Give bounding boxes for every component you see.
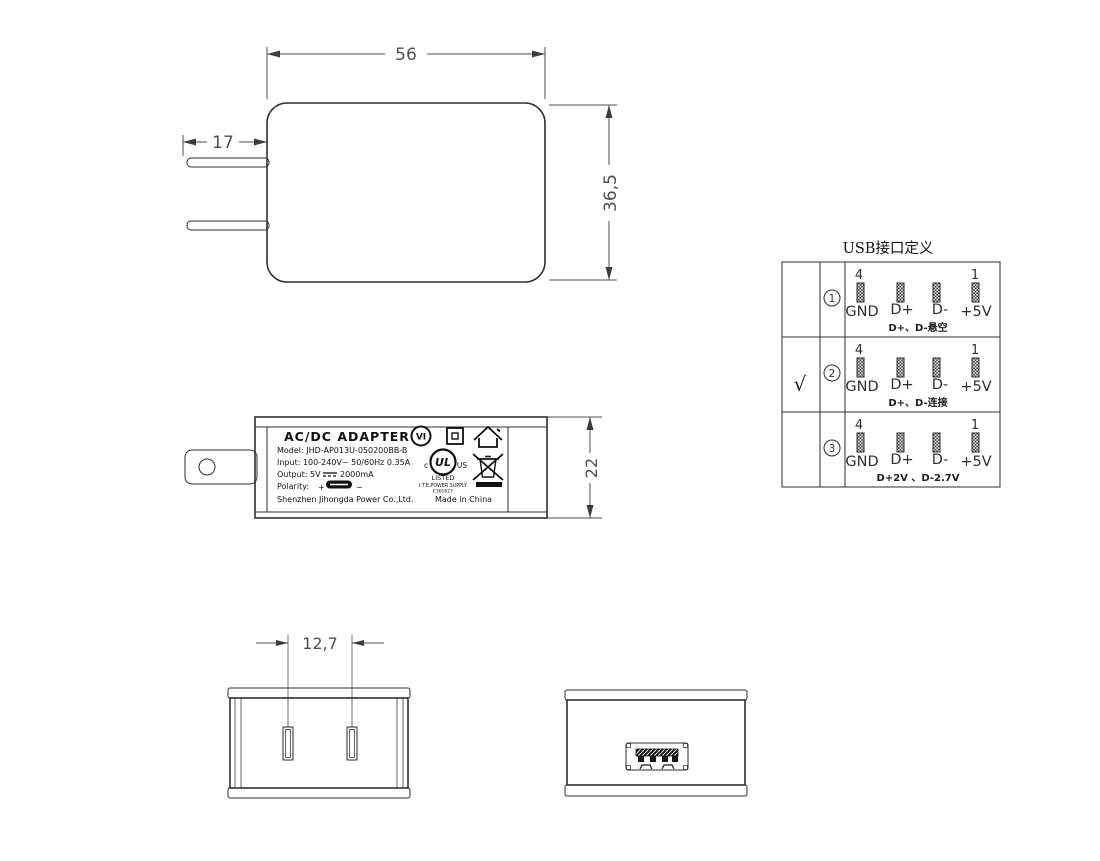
pin-label-gnd: GND (845, 379, 878, 395)
dim-height-22: 22 (547, 417, 602, 518)
arrowhead (532, 51, 545, 58)
outer-square (447, 428, 463, 444)
case-side-strip (397, 698, 403, 788)
cul-us-listed-icon: UL c US LISTED I.T.E.POWER SUPPLY E36162… (419, 450, 467, 495)
pin-label-5v: +5V (960, 304, 991, 320)
usb-contact-tab (650, 756, 656, 762)
ul-listed-text: LISTED (432, 474, 455, 482)
usb-a-port (626, 743, 688, 770)
pinout-row-2: √ 2 4 1 GND D+ D- +5V D+、D-连接 (794, 343, 992, 409)
efficiency-vi-icon: VI (412, 427, 431, 446)
label-polarity-minus: − (356, 483, 363, 492)
dim-value-height: 36,5 (601, 174, 621, 212)
pin-number-4: 4 (855, 343, 863, 358)
ul-file-number: E361627 (433, 489, 453, 495)
weee-crossed-bin-icon (473, 454, 503, 487)
usb-shell-notch (662, 765, 674, 769)
indoor-use-house-icon (474, 427, 502, 447)
row-number: 3 (829, 443, 836, 455)
dc-symbol-icon (323, 473, 337, 476)
pin-number-1: 1 (971, 343, 979, 358)
spec-label: AC/DC ADAPTER Model: JHD-AP013U-050200BB… (267, 427, 508, 513)
dim-value-prong-length: 17 (212, 133, 234, 153)
case-body (230, 698, 408, 788)
pin-label-dplus: D+ (890, 452, 913, 468)
usb-pin-contact (972, 283, 979, 302)
label-made-in: Made in China (435, 495, 492, 504)
case-bottom-cap (228, 788, 410, 798)
usb-tongue (636, 749, 678, 756)
label-output-current: 2000mA (340, 470, 374, 479)
dim-prong-length-17: 17 (183, 133, 267, 156)
usb-port-outline (626, 743, 688, 770)
arrowhead (587, 505, 594, 518)
pin-label-dminus: D- (932, 302, 948, 318)
arrowhead (606, 105, 613, 118)
usb-pin-contact (933, 283, 940, 302)
row-selected-mark: √ (794, 372, 807, 396)
usb-port-corner (684, 744, 688, 748)
prong-inner-line (350, 730, 355, 758)
pinout-row-1: 1 4 1 GND D+ D- +5V D+、D-悬空 (824, 268, 992, 334)
usb-pin-contact (933, 433, 940, 452)
arrowhead (183, 139, 196, 146)
ul-us: US (457, 461, 467, 470)
table-title: USB接口定义 (843, 240, 934, 257)
pinout-row-3: 3 4 1 GND D+ D- +5V D+2V 、D-2.7V (824, 418, 992, 484)
house-walls (479, 438, 497, 447)
row-note: D+、D-悬空 (888, 321, 947, 334)
mains-prong (187, 158, 269, 167)
mains-prong-side (185, 450, 257, 484)
pin-label-5v: +5V (960, 454, 991, 470)
weee-bar (476, 482, 502, 487)
house-chimney (497, 429, 500, 432)
mains-prong-front (283, 727, 293, 760)
adapter-body-outline (267, 103, 545, 282)
usb-contact-tab (672, 756, 678, 762)
usb-contact-tab (662, 756, 668, 762)
prong-outline (347, 727, 357, 760)
pin-number-4: 4 (855, 418, 863, 433)
usb-pin-contact (897, 358, 904, 377)
label-model-line: Model: JHD-AP013U-050200BB-B (277, 446, 407, 455)
arrowhead (254, 139, 267, 146)
technical-drawing-canvas: 56 17 36,5 (0, 0, 1100, 861)
arrowhead (606, 267, 613, 280)
ul-supply-text: I.T.E.POWER SUPPLY (419, 483, 467, 489)
pin-label-dplus: D+ (890, 302, 913, 318)
dim-value-width: 56 (395, 45, 417, 65)
row-number: 2 (829, 368, 836, 380)
pin-label-dminus: D- (932, 377, 948, 393)
pin-label-gnd: GND (845, 454, 878, 470)
prong-hole (199, 459, 215, 475)
class2-double-insulation-icon (447, 428, 463, 444)
ul-letters: UL (435, 456, 451, 469)
usb-pinout-table: USB接口定义 1 4 1 GND D+ D- +5V D+、D-悬空 √ (770, 225, 1015, 500)
dim-prong-spacing-12-7: 12,7 (256, 634, 384, 727)
label-company: Shenzhen Jihongda Power Co.,Ltd. (277, 495, 414, 504)
pin-label-gnd: GND (845, 304, 878, 320)
dim-value-thickness: 22 (582, 458, 601, 478)
arrowhead (267, 51, 280, 58)
inner-square (452, 433, 458, 439)
label-output-prefix: Output: 5V (277, 470, 321, 479)
arrowhead (587, 417, 594, 430)
label-title: AC/DC ADAPTER (284, 429, 410, 444)
usb-pin-contact (857, 358, 864, 377)
usb-port-corner (627, 766, 631, 770)
row-note: D+2V 、D-2.7V (877, 473, 960, 484)
case-top-cap (565, 690, 747, 700)
pin-number-1: 1 (971, 418, 979, 433)
case-side-strip (235, 698, 241, 788)
arrowhead (276, 640, 288, 646)
pin-number-1: 1 (971, 268, 979, 283)
case-bottom-cap (565, 785, 747, 796)
side-view: AC/DC ADAPTER Model: JHD-AP013U-050200BB… (170, 395, 620, 540)
pin-number-4: 4 (855, 268, 863, 283)
arrowhead (352, 640, 364, 646)
prong-outline (283, 727, 293, 760)
dim-height-36-5: 36,5 (549, 105, 621, 280)
mains-prong-front (347, 727, 357, 760)
label-polarity: Polarity: (277, 482, 309, 491)
row-number: 1 (829, 293, 836, 305)
usb-pin-contact (857, 433, 864, 452)
usb-contact-tab (638, 756, 644, 762)
usb-pin-contact (897, 283, 904, 302)
row-note: D+、D-连接 (888, 396, 947, 409)
usb-pin-contact (933, 358, 940, 377)
pin-label-dminus: D- (932, 452, 948, 468)
dim-width-56: 56 (267, 45, 545, 99)
plug-face-view: 12,7 (210, 615, 430, 810)
usb-shell-notch (640, 765, 652, 769)
case-top-cap (228, 688, 410, 698)
usb-pin-contact (972, 358, 979, 377)
front-view: 56 17 36,5 (155, 25, 655, 295)
usb-pin-contact (897, 433, 904, 452)
ul-c: c (424, 461, 428, 470)
dim-value-prong-spacing: 12,7 (302, 634, 338, 653)
usb-face-view (545, 665, 765, 810)
usb-port-corner (684, 766, 688, 770)
label-polarity-plus: + (318, 483, 325, 492)
label-input-line: Input: 100-240V~ 50/60Hz 0.35A (277, 458, 411, 467)
usb-polarity-icon (326, 481, 352, 489)
usb-pin-contact (972, 433, 979, 452)
vi-text: VI (416, 433, 426, 443)
pin-label-dplus: D+ (890, 377, 913, 393)
usb-pin-contact (857, 283, 864, 302)
usb-port-corner (627, 744, 631, 748)
prong-inner-line (286, 730, 291, 758)
pin-label-5v: +5V (960, 379, 991, 395)
mains-prong (187, 221, 269, 230)
